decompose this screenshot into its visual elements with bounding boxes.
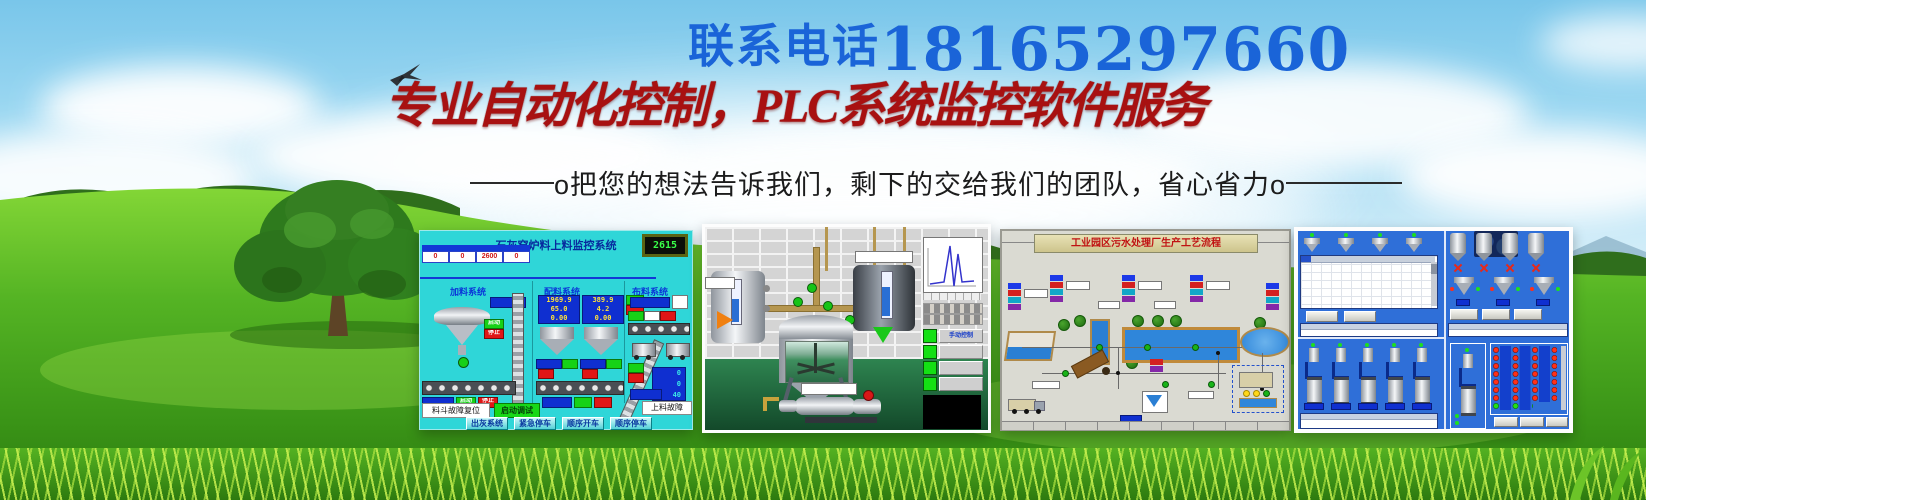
tree-icon [1132, 315, 1144, 327]
board-scrollbar [1561, 346, 1566, 410]
status-dot [1344, 233, 1348, 237]
silo-cone [1528, 253, 1544, 261]
mixer-dome [779, 315, 853, 341]
pipe [763, 305, 863, 312]
promo-banner: 联系电话18165297660 专业自动化控制，PLC系统监控软件服务 o把您的… [0, 0, 1646, 500]
pump-body [795, 397, 855, 415]
status-dot [1490, 287, 1494, 291]
button [1494, 417, 1518, 427]
hmi1-table-cell: 0 [449, 251, 476, 263]
wastewater-title: 工业园区污水处理厂生产工艺流程 [1034, 234, 1258, 253]
feed-fault-label: 上料故障 [642, 401, 692, 415]
hopper-cone [446, 325, 478, 345]
button [1306, 311, 1338, 322]
status-chip [542, 397, 572, 408]
status-chip [630, 297, 670, 308]
tree-icon [1058, 319, 1070, 331]
label-box [1024, 289, 1048, 298]
screenshot-wastewater-hmi: 工业园区污水处理厂生产工艺流程 [1000, 229, 1291, 431]
black-display [923, 395, 981, 429]
status-chip [1536, 299, 1550, 306]
nozzle [763, 285, 770, 292]
button [1344, 311, 1376, 322]
pipe-joint [1216, 351, 1220, 355]
label-box [1188, 391, 1214, 399]
sequence-stop-button: 顺序停车 [610, 417, 652, 430]
dosing-box [1239, 372, 1273, 388]
valve [1144, 344, 1151, 351]
pipe [813, 247, 820, 309]
screenshot-blue-batching-hmi [1294, 227, 1573, 433]
pipe [1218, 353, 1219, 389]
mini-hopper-cone [1374, 244, 1386, 252]
hmi1-table-cell: 0 [503, 251, 530, 263]
valve [1062, 370, 1069, 377]
screen-roller [1102, 367, 1110, 375]
silo-cone [1450, 253, 1466, 261]
valve [1192, 344, 1199, 351]
manual-control-bar: 手动控制 [939, 329, 983, 343]
silo-body [584, 327, 618, 339]
batch2-values: 389.94.20.00 [582, 295, 624, 324]
hmi1-separator [624, 281, 625, 403]
flow-arrow-down [873, 327, 893, 343]
bottom-tab-strip [1002, 421, 1289, 430]
message-panel [1300, 323, 1438, 337]
hopper-fault-reset-button: 料斗故障复位 [422, 403, 490, 418]
pipe [1022, 347, 1242, 348]
label-box [1206, 281, 1230, 290]
status-dot [1412, 233, 1416, 237]
aeration-tank [1122, 327, 1240, 363]
debug-button: 启动调试 [494, 403, 540, 418]
alarm-board [1490, 343, 1568, 415]
indicator-stack [1008, 283, 1021, 311]
tagline-rule-left [470, 182, 554, 184]
hopper-bowl [434, 307, 490, 325]
mode-chip [644, 311, 660, 321]
control-bar [939, 377, 983, 391]
alarm-indicator-grid-green [1493, 402, 1533, 410]
headline: 专业自动化控制，PLC系统监控软件服务 [385, 66, 1206, 136]
indicator-stack [1266, 283, 1279, 311]
cloud [1540, 16, 1646, 70]
hmi1-table: 0 0 2600 0 [422, 251, 530, 263]
hmi1-section-feeding: 加料系统 [450, 285, 486, 298]
indicator-stack [1190, 275, 1203, 303]
status-dot [1476, 287, 1480, 291]
mini-hopper-cone [1408, 244, 1420, 252]
lamp [1253, 390, 1260, 397]
control-bar [939, 345, 983, 359]
button [1520, 417, 1544, 427]
status-lamp [923, 345, 937, 359]
data-table [1300, 255, 1438, 309]
outlet-faucet [763, 397, 767, 411]
hmi1-divider [420, 277, 656, 279]
message-panel [1448, 323, 1568, 337]
table-header-row [1301, 256, 1435, 263]
mini-pool [1239, 398, 1277, 408]
status-lamp [923, 377, 937, 391]
pipe [1042, 373, 1226, 374]
status-dot [1516, 287, 1520, 291]
screenshot-lime-kiln-hmi: 石灰窑炉料上料监控系统 2615 0 0 2600 0 加料系统 配料系统 布料… [419, 230, 693, 430]
silo-cone [1502, 253, 1518, 261]
pump-unit [1356, 343, 1380, 409]
chart-toolbar [923, 314, 983, 325]
tree-icon [1170, 315, 1182, 327]
label-box [855, 251, 913, 263]
indicator-stack [1050, 275, 1063, 303]
level-fill [732, 299, 739, 322]
message-panel [1300, 413, 1438, 429]
valve [807, 283, 817, 293]
start-chip [574, 397, 592, 408]
status-chip [1456, 299, 1470, 306]
stop-chip [538, 369, 554, 379]
cart-wheel [646, 355, 651, 360]
level-fill [882, 287, 890, 316]
x-valve-mark [1531, 263, 1541, 273]
indicator-stack [1122, 275, 1135, 303]
cart-wheel [668, 355, 673, 360]
silo [1450, 233, 1466, 253]
batch1-values: 1969.965.00.00 [538, 295, 580, 324]
dosing-zone [1232, 365, 1284, 413]
label-box [1098, 301, 1120, 309]
status-chip [630, 389, 662, 400]
brick-wall-scene: 手动控制 [705, 227, 988, 430]
stop-chip [594, 397, 612, 408]
mini-hopper-cone [1340, 244, 1352, 252]
trend-line [924, 238, 980, 290]
x-valve-mark [1453, 263, 1463, 273]
conveyor [422, 381, 516, 395]
settler-funnel [1146, 395, 1162, 407]
sequence-start-button: 顺序开车 [562, 417, 604, 430]
x-valve-mark [1505, 263, 1515, 273]
status-lamp [923, 361, 937, 375]
valve [1162, 381, 1169, 388]
stop-chip [628, 373, 644, 383]
truck-wheel [1036, 409, 1041, 414]
quadrant-separator [1444, 231, 1446, 429]
silo-cone [1476, 253, 1492, 261]
emergency-stop-button: 紧急停车 [514, 417, 556, 430]
silo-cone [584, 339, 618, 355]
pump-valve-knob [863, 390, 874, 401]
clarifier [1240, 327, 1290, 357]
start-chip: 启动 [484, 319, 504, 329]
pump-unit [1302, 343, 1326, 409]
quadrant-separator [1298, 337, 1444, 339]
label-box [801, 383, 857, 395]
tagline-text: o把您的想法告诉我们，剩下的交给我们的团队，省心省力o [554, 163, 1286, 202]
pump-inlet [779, 400, 797, 412]
pump-base [805, 417, 877, 423]
truck-wheel [1012, 409, 1017, 414]
label-box [705, 277, 735, 289]
flow-arrow [717, 311, 733, 329]
status-lamp [923, 329, 937, 343]
label-box [1066, 281, 1090, 290]
screenshot-3d-mixer-hmi: 手动控制 [702, 224, 991, 433]
start-chip [606, 359, 622, 369]
hmi1-separator [532, 281, 533, 403]
x-valve-mark [1479, 263, 1489, 273]
stop-chip [660, 311, 676, 321]
start-chip [562, 359, 578, 369]
stop-chip: 停止 [484, 329, 504, 339]
lamp [1263, 390, 1270, 397]
start-chip [628, 363, 644, 373]
button [1450, 309, 1478, 320]
weigh-hopper-cone [1496, 283, 1512, 295]
hmi1-table-cell: 2600 [476, 251, 503, 263]
button [1482, 309, 1510, 320]
silo-cone [540, 339, 574, 355]
valve-indicator [458, 357, 469, 368]
valve [793, 297, 803, 307]
hmi1-table-cell: 0 [422, 251, 449, 263]
weigh-hopper-cone [1456, 283, 1472, 295]
status-dot [1450, 287, 1454, 291]
label-box [1154, 301, 1176, 309]
stop-chip [582, 369, 598, 379]
control-bar [939, 361, 983, 375]
status-dot [1378, 233, 1382, 237]
hmi1-lcd-display: 2615 [642, 234, 688, 257]
foreground-grass-blades [0, 448, 1646, 500]
tree-icon [1152, 315, 1164, 327]
pump-unit [1383, 343, 1407, 409]
cart-wheel [680, 355, 685, 360]
tagline-row: o把您的想法告诉我们，剩下的交给我们的团队，省心省力o [470, 163, 1402, 202]
status-chip [580, 359, 606, 369]
bucket-elevator [512, 293, 524, 413]
pipe [1118, 347, 1119, 389]
table-corner-cell [1301, 256, 1311, 262]
pump-unit [1329, 343, 1353, 409]
label-box [1138, 281, 1162, 290]
lamp [1243, 390, 1250, 397]
single-pump-panel [1450, 343, 1486, 429]
alarm-indicator-grid [1493, 346, 1557, 402]
cart-wheel [634, 355, 639, 360]
silo [1502, 233, 1518, 253]
chart-toolbar [923, 303, 983, 314]
truck-wheel [1024, 409, 1029, 414]
silo [1528, 233, 1544, 253]
inlet-basin [1004, 331, 1056, 361]
mini-hopper-cone [1306, 244, 1318, 252]
tagline-rule-right [1286, 182, 1402, 184]
valve [1208, 381, 1215, 388]
hopper-stem [458, 345, 466, 355]
ash-system-button: 出灰系统 [466, 417, 508, 430]
chart-axis-strip [923, 293, 981, 300]
label-box [1032, 381, 1060, 389]
pipe-joint [1116, 371, 1120, 375]
valve [823, 301, 833, 311]
pipe [825, 227, 828, 271]
status-dot [1310, 233, 1314, 237]
nozzle [763, 305, 770, 312]
value-box [672, 295, 688, 309]
tree-icon [1074, 315, 1086, 327]
button [1514, 309, 1542, 320]
start-chip [628, 311, 644, 321]
silo-body [540, 327, 574, 339]
status-chip [536, 359, 562, 369]
trend-chart [923, 237, 983, 293]
conveyor [536, 381, 624, 395]
table-scrollbar [1431, 262, 1437, 306]
grass-blade-tufts [1560, 420, 1646, 500]
tree [222, 168, 452, 378]
phone-label: 联系电话 [688, 20, 880, 72]
silo [1476, 233, 1492, 253]
status-dot [1556, 287, 1560, 291]
status-dot [1530, 287, 1534, 291]
pump-unit [1410, 343, 1434, 409]
weigh-hopper-cone [1536, 283, 1552, 295]
dosing-stack [1150, 359, 1163, 373]
conveyor [628, 323, 690, 335]
status-chip [1496, 299, 1510, 306]
pump-motor [853, 399, 881, 414]
